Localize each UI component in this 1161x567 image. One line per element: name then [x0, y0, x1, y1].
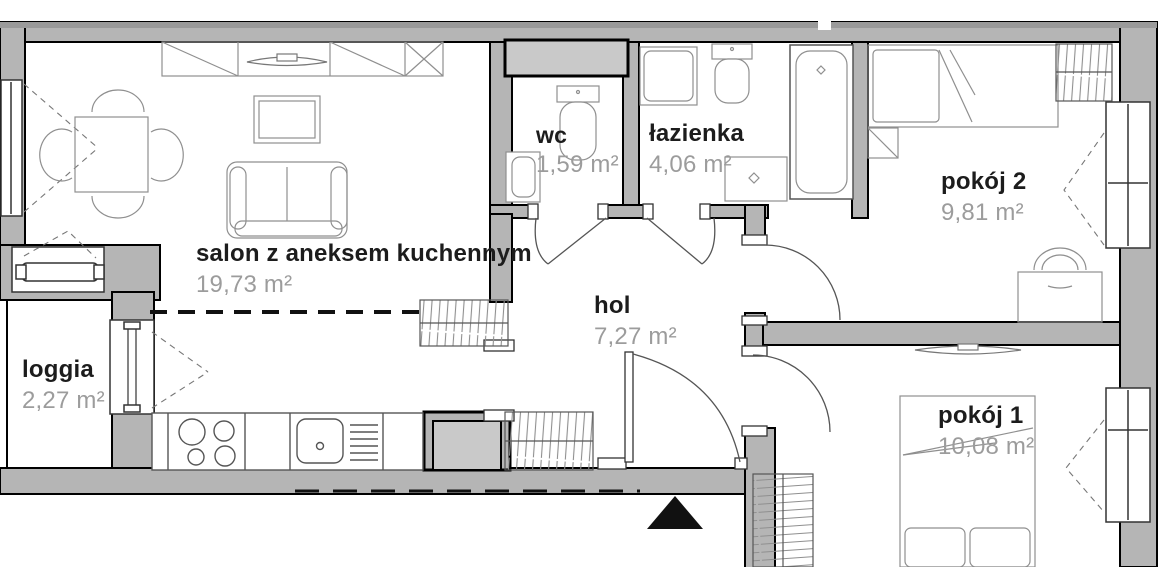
- salon-window: [1, 80, 98, 216]
- chair-icon: [40, 129, 72, 181]
- wall-top-dark-strip: [0, 22, 1157, 28]
- pokoj1-window: [1066, 388, 1150, 522]
- entrance-door: [625, 352, 740, 462]
- floor-plan-drawing: [0, 0, 1161, 567]
- pokoj2-door: [765, 245, 840, 320]
- wc-fixtures: [506, 86, 599, 202]
- sofa-icon: [227, 162, 347, 238]
- bathtub-icon: [790, 45, 853, 199]
- radiator: [22, 263, 98, 281]
- wardrobe-icon: [753, 474, 813, 567]
- washbasin-icon: [506, 152, 540, 202]
- chair-icon: [92, 90, 144, 112]
- hol-wardrobe-icon: [505, 412, 593, 470]
- shaft-wc: [505, 40, 628, 76]
- pokoj2-furniture: [868, 44, 1112, 322]
- desk-chair-icon: [1034, 248, 1086, 288]
- salon-wardrobe-icon: [420, 300, 508, 346]
- shaft-hol-inner: [433, 421, 501, 470]
- radiator-tv-icon: [247, 54, 327, 66]
- wall-top-joint: [818, 20, 831, 30]
- hol-furniture: [505, 412, 593, 470]
- ventilation-shafts: [424, 40, 628, 470]
- lazienka-door: [647, 218, 715, 264]
- dining-table-icon: [40, 90, 184, 218]
- desk-icon: [1018, 272, 1102, 322]
- wc-door: [535, 218, 606, 264]
- washing-machine-icon: [640, 47, 697, 105]
- entrance-arrow: [647, 496, 703, 529]
- pokoj2-window: [1064, 102, 1150, 248]
- floor-plan: salon z aneksem kuchennym 19,73 m² loggi…: [0, 0, 1161, 567]
- lazienka-fixtures: [640, 44, 853, 201]
- chair-icon: [92, 196, 144, 218]
- toilet-icon: [557, 86, 599, 160]
- loggia-balcony-door: [110, 320, 208, 414]
- tv-cabinet-icon: [254, 96, 320, 143]
- nightstand-icon: [868, 128, 898, 158]
- wardrobe-icon: [1056, 44, 1112, 101]
- bed-single-icon: [868, 45, 1058, 127]
- pokoj1-door: [753, 355, 830, 432]
- toilet-icon: [712, 44, 752, 103]
- kitchen-counter-icon: [152, 413, 423, 470]
- chair-icon: [151, 129, 183, 181]
- bed-double-icon: [900, 396, 1035, 567]
- pokoj1-furniture: [753, 344, 1035, 567]
- washbasin-icon: [725, 157, 787, 201]
